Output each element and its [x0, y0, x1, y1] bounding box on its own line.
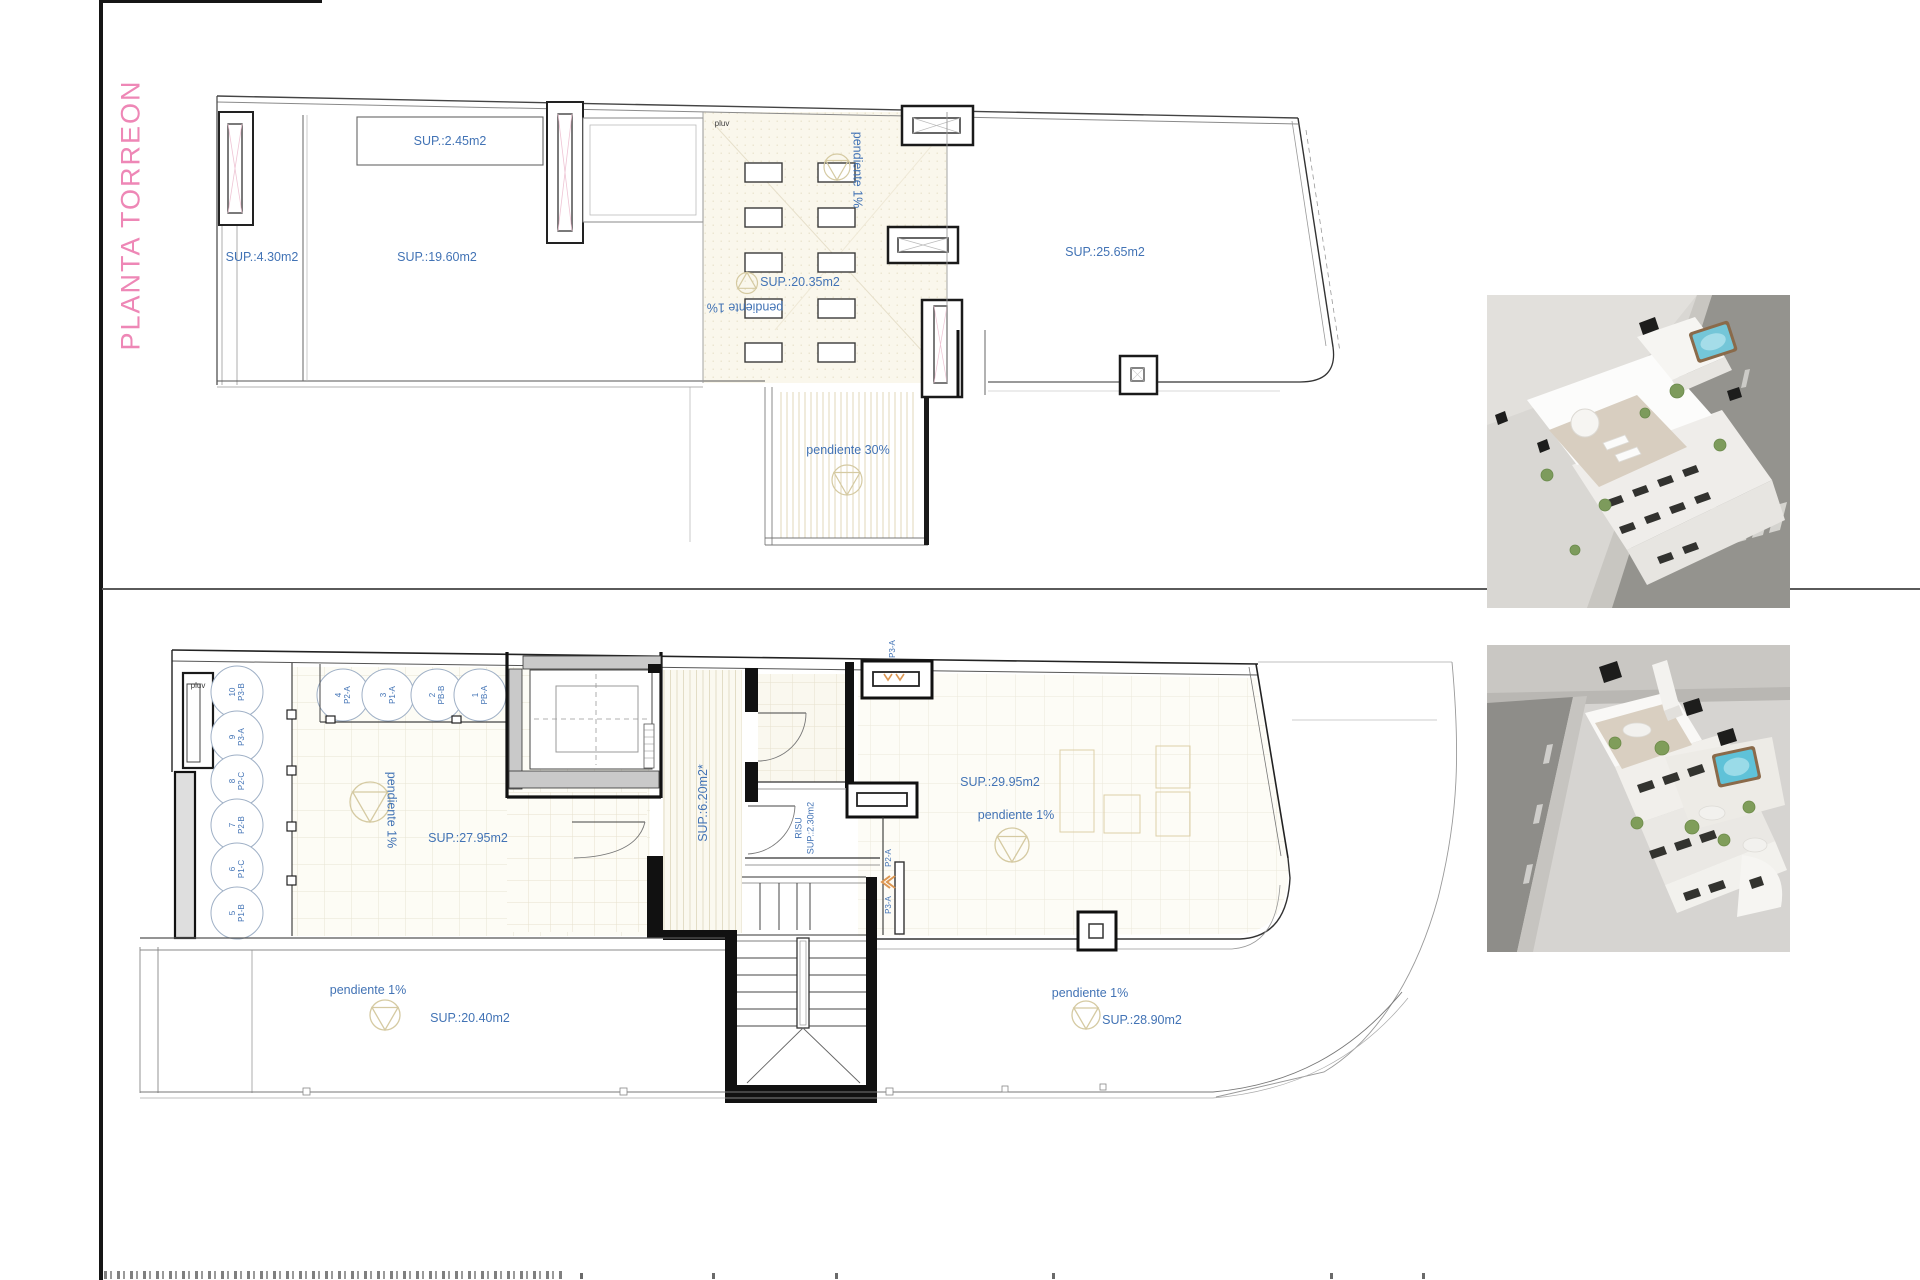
duct-label-p3a: P3-A [885, 896, 893, 914]
frame-left-border [99, 0, 103, 1280]
tank-label-6: 6P1-C [228, 860, 246, 878]
duct-label-top: P3-A [889, 640, 897, 658]
area-label-20-40: SUP.:20.40m2 [430, 1012, 510, 1025]
slope-label-bottom-left: pendiente 1% [330, 984, 406, 997]
bottom-plan-drawing [120, 600, 1480, 1140]
ruler-tick [1052, 1273, 1055, 1279]
slope-label-left-terrace: pendiente 1% [385, 772, 398, 848]
tank-label-9: 9P3-A [228, 728, 246, 746]
slope-label-right-terrace: pendiente 1% [978, 809, 1054, 822]
tank-label-3: 3P1-A [379, 686, 397, 704]
area-label-19-60: SUP.:19.60m2 [397, 251, 477, 264]
duct-label-p2a: P2-A [885, 849, 893, 867]
area-label-25-65: SUP.:25.65m2 [1065, 246, 1145, 259]
area-label-28-90: SUP.:28.90m2 [1102, 1014, 1182, 1027]
slope-label-mid-inverted: pendiente 1% [707, 301, 783, 314]
area-label-20-35: SUP.:20.35m2 [760, 276, 840, 289]
ruler-tick [1330, 1273, 1333, 1279]
tank-label-7: 7P2-B [228, 816, 246, 834]
render-aerial-top [1487, 295, 1790, 608]
plan-sheet: PLANTA TORREON [0, 0, 1920, 1280]
ruler-tick [1422, 1273, 1425, 1279]
area-label-27-95: SUP.:27.95m2 [428, 832, 508, 845]
tank-label-8: 8P2-C [228, 772, 246, 790]
tank-label-10: 10P3-B [228, 683, 246, 701]
note-pluv-top: pluv [715, 120, 730, 128]
frame-top-border [100, 0, 322, 3]
ruler-tick [835, 1273, 838, 1279]
tank-label-5: 5P1-B [228, 904, 246, 922]
slope-label-mid-vertical: pendiente 1% [851, 132, 864, 208]
railing-posts [303, 1084, 1106, 1095]
titleblock-text-strip [104, 1271, 564, 1279]
ruler-tick [580, 1273, 583, 1279]
note-pluv-bottom: pluv [191, 682, 206, 690]
tank-label-1: 1PB-A [471, 686, 489, 705]
area-label-29-95: SUP.:29.95m2 [960, 776, 1040, 789]
area-label-2-45: SUP.:2.45m2 [414, 135, 487, 148]
tank-label-2: 2PB-B [428, 686, 446, 705]
area-label-4-30: SUP.:4.30m2 [226, 251, 299, 264]
slope-label-ramp-30: pendiente 30% [806, 444, 889, 457]
render-aerial-bottom [1487, 645, 1790, 952]
ruler-tick [712, 1273, 715, 1279]
top-plan-drawing [140, 60, 1420, 580]
area-label-6-20: SUP.:6.20m2* [697, 764, 710, 842]
tank-label-4: 4P2-A [334, 686, 352, 704]
risu-room-label: RISU SUP.:2.30m2 [793, 802, 816, 854]
slope-label-bottom-right: pendiente 1% [1052, 987, 1128, 1000]
